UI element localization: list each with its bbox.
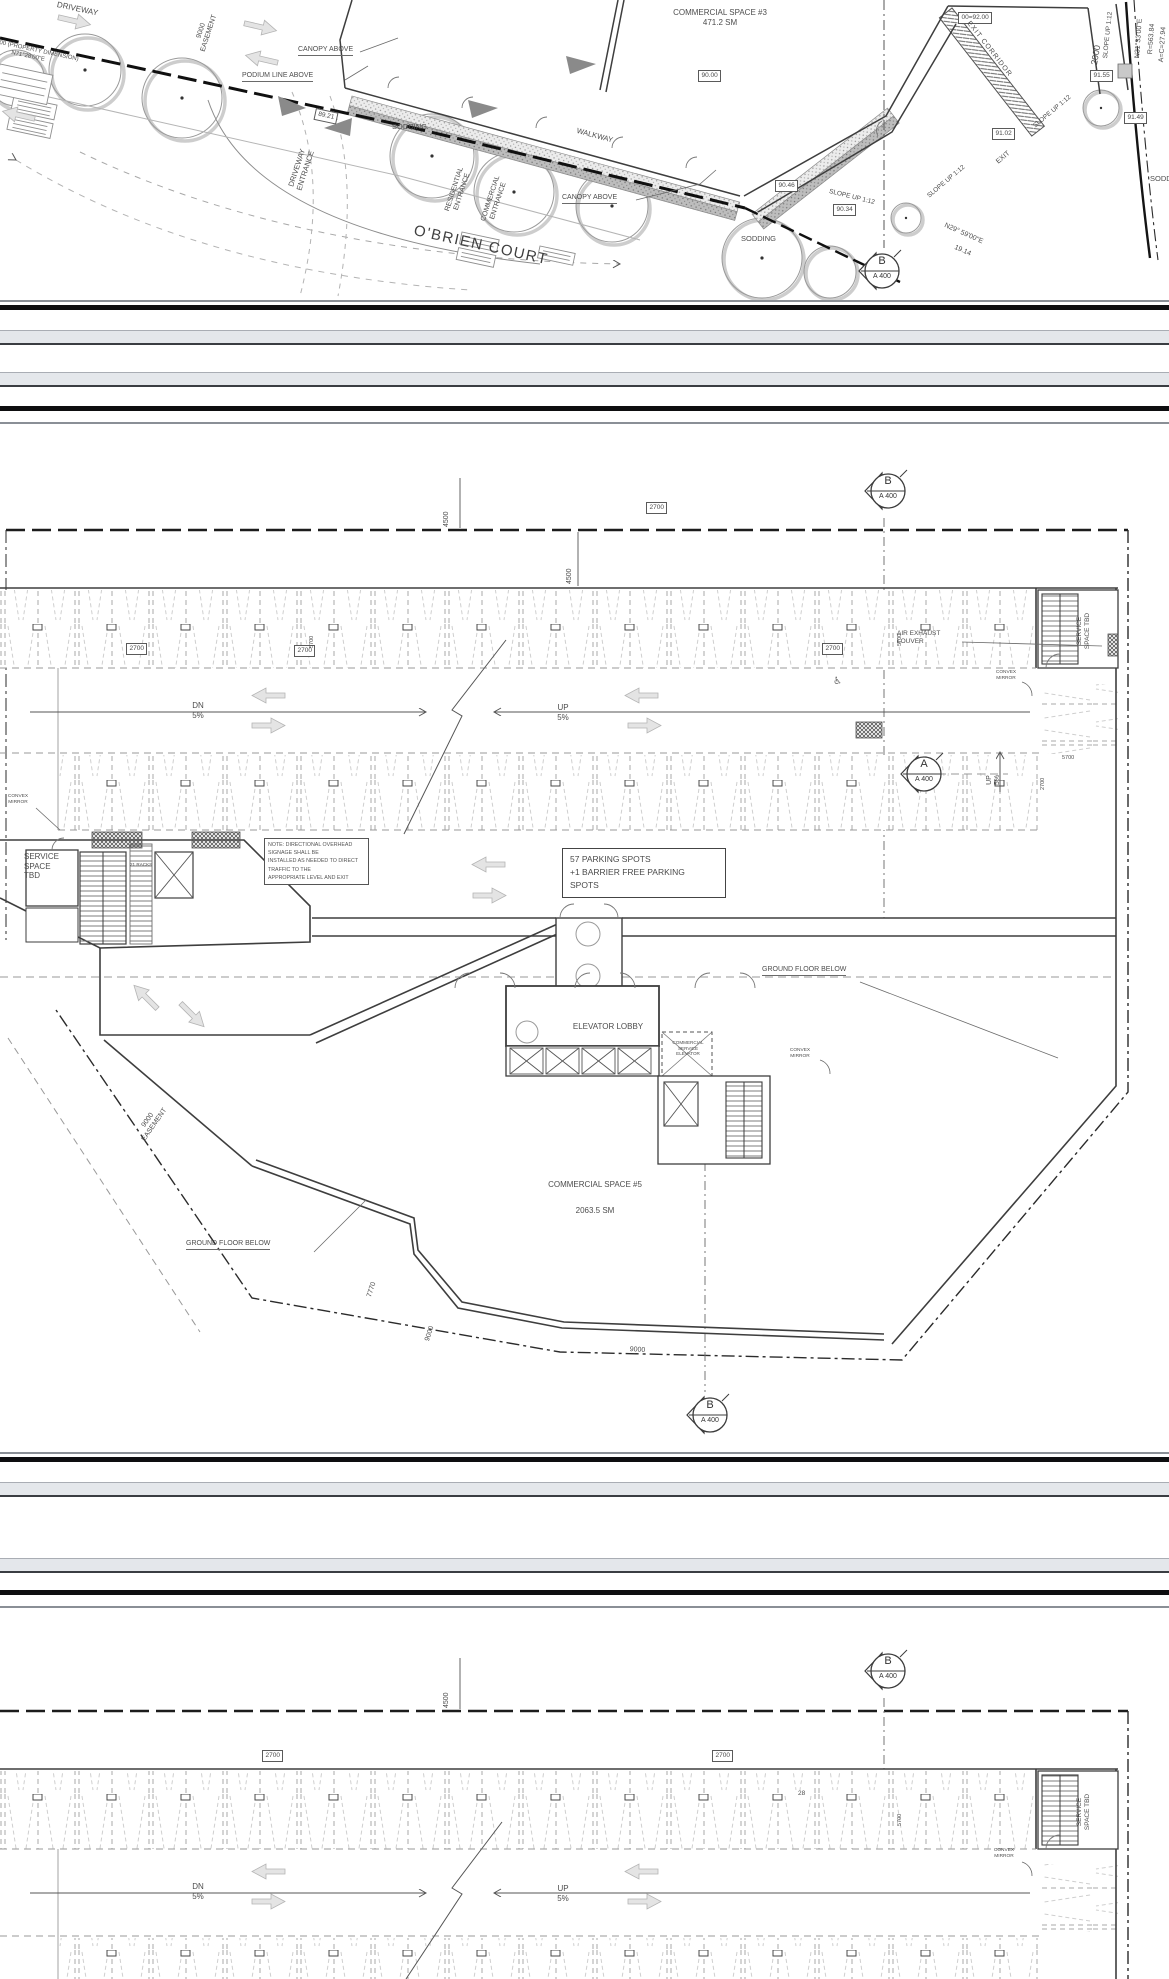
dim-tag-2700: 2700 (822, 643, 843, 655)
label-ramp-up: UP5% (552, 703, 574, 722)
grille (192, 832, 240, 848)
dim-tag-2700: 2700 (646, 502, 667, 514)
elevation-tag: 90.46 (775, 180, 798, 192)
label-sodding: SODDING (1150, 174, 1169, 183)
label-convex-mirror: CONVEXMIRROR (988, 1848, 1020, 1860)
sheet-divider-band (0, 372, 1169, 387)
label-sodding: SODDING (741, 234, 776, 243)
section-marker-b: BA 400 (860, 1648, 908, 1694)
section-marker-a: AA 400 (896, 751, 944, 797)
section-marker-b: BA 400 (854, 248, 902, 294)
grille (92, 832, 142, 848)
dim-tag-2700: 2700 (262, 1750, 283, 1762)
dim-5700: 5700 (1062, 755, 1074, 762)
label-count-28: 28 (798, 1790, 805, 1798)
elevation-tag: 90.34 (833, 204, 856, 216)
label-bike-racks: 21 RACKS (130, 862, 152, 868)
label-ramp-up-side: UP5% (986, 768, 1003, 792)
label-service-space-left: SERVICESPACETBD (24, 852, 59, 881)
label-ramp-dn: DN5% (187, 701, 209, 720)
label-ramp-dn: DN5% (187, 1882, 209, 1901)
dim-5700: 5700 (309, 636, 316, 648)
label-convex-mirror: CONVEXMIRROR (784, 1048, 816, 1060)
sheet-divider-band (0, 1558, 1169, 1573)
service-core-se (658, 1076, 770, 1164)
sheet-divider (0, 406, 1169, 411)
dim-4500: 4500 (443, 511, 451, 527)
label-podium-line: PODIUM LINE ABOVE (242, 72, 313, 82)
parking-row-side (1042, 1864, 1118, 1932)
label-convex-mirror: CONVEXMIRROR (990, 670, 1022, 682)
elevation-tag: 00=92.00 (958, 12, 992, 24)
sheet-divider (0, 300, 1169, 302)
accessible-parking-icon: ♿ (833, 676, 842, 687)
parking-row (0, 590, 1036, 668)
label-elevator-lobby: ELEVATOR LOBBY (543, 1022, 673, 1032)
sheet-divider (0, 422, 1169, 424)
label-ground-floor-below: GROUND FLOOR BELOW (186, 1240, 270, 1250)
dim-tag-2700: 2700 (126, 643, 147, 655)
plan-linework (0, 0, 1169, 1979)
label-cs5-area: 2063.5 SM (505, 1206, 685, 1216)
label-service-space-right: SERVICESPACE TBD (1076, 1779, 1092, 1845)
dim-5700: 5700 (897, 634, 904, 646)
parking-count-note: 57 PARKING SPOTS+1 BARRIER FREE PARKINGS… (562, 848, 726, 898)
elevation-tag: 91.55 (1090, 70, 1113, 82)
sheet-divider (0, 305, 1169, 310)
label-commercial-service-elevator: COMMERCIALSERVICEELEVATOR (664, 1040, 712, 1057)
dim-4500: 4500 (566, 568, 574, 584)
dim-9000: 9000 (629, 1346, 645, 1355)
dim-4500: 4500 (443, 1692, 451, 1708)
label-service-space-right: SERVICESPACE TBD (1076, 598, 1092, 664)
sheet-divider (0, 1590, 1169, 1595)
air-exhaust-louver (1108, 634, 1118, 656)
dim-tag-2700: 2700 (712, 1750, 733, 1762)
elevation-tag: 90.00 (698, 70, 721, 82)
bottom-plan (0, 1658, 1128, 1979)
grille (856, 722, 882, 738)
section-marker-b: BA 400 (860, 468, 908, 514)
sheet-divider (0, 1606, 1169, 1608)
label-commercial-space-5: COMMERCIAL SPACE #5 (505, 1180, 685, 1190)
label-convex-mirror: CONVEXMIRROR (2, 794, 34, 806)
label-canopy-above: CANOPY ABOVE (562, 194, 617, 204)
label-sodding: SODDING (392, 122, 427, 131)
middle-plan (0, 478, 1128, 1392)
sheet-divider (0, 1457, 1169, 1462)
elevation-tag: 91.49 (1124, 112, 1147, 124)
door-arcs-top (388, 77, 882, 168)
sheet-divider-band (0, 330, 1169, 345)
label-ground-floor-below: GROUND FLOOR BELOW (762, 966, 846, 976)
label-commercial-space-3: COMMERCIAL SPACE #3471.2 SM (585, 8, 855, 27)
sheet-divider (0, 1452, 1169, 1454)
elevation-tag: 91.02 (992, 128, 1015, 140)
label-canopy-above: CANOPY ABOVE (298, 46, 353, 56)
dim-5700: 5700 (897, 1814, 904, 1826)
service-core-left (26, 832, 240, 944)
label-ramp-up: UP5% (552, 1884, 574, 1903)
bike-racks (130, 844, 152, 944)
floor-plan-sheet: DRIVEWAY 00 (PROPERTY DIMENSION) N71°28'… (0, 0, 1169, 1979)
exit-corridor-hatch (939, 8, 1044, 136)
parking-row (58, 755, 1040, 830)
sheet-divider-band (0, 1482, 1169, 1497)
dim-2700: 2700 (1040, 778, 1047, 790)
parking-row-side (1042, 684, 1118, 754)
overhead-signage-note: NOTE: DIRECTIONAL OVERHEAD SIGNAGE SHALL… (264, 838, 369, 885)
parking-row (58, 1938, 1040, 1979)
section-marker-b: BA 400 (682, 1392, 730, 1438)
parking-row (0, 1771, 1036, 1849)
